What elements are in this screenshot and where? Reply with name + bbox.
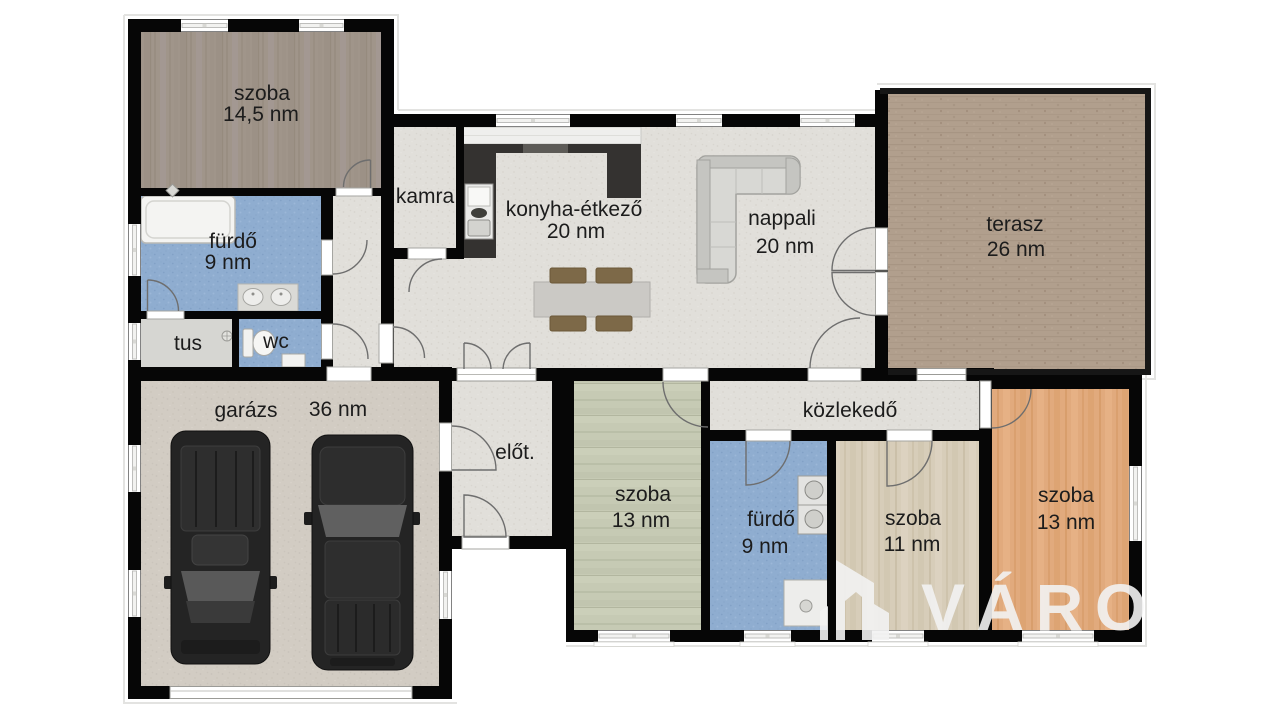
svg-text:14,5 nm: 14,5 nm — [223, 103, 299, 126]
svg-text:13 nm: 13 nm — [1037, 511, 1095, 534]
svg-text:szoba: szoba — [1038, 484, 1094, 507]
svg-text:VÁRO: VÁRO — [921, 570, 1158, 644]
svg-text:11 nm: 11 nm — [884, 533, 941, 556]
svg-text:nappali: nappali — [748, 207, 816, 230]
svg-text:26 nm: 26 nm — [987, 238, 1045, 261]
svg-text:kamra: kamra — [396, 185, 455, 208]
svg-text:terasz: terasz — [986, 213, 1043, 236]
svg-text:szoba: szoba — [615, 483, 671, 506]
svg-text:13 nm: 13 nm — [612, 509, 670, 532]
svg-text:közlekedő: közlekedő — [803, 399, 898, 422]
svg-text:fürdő: fürdő — [747, 508, 795, 531]
svg-text:36 nm: 36 nm — [309, 398, 367, 421]
svg-text:9 nm: 9 nm — [205, 251, 252, 274]
svg-text:20 nm: 20 nm — [547, 220, 605, 243]
svg-text:9 nm: 9 nm — [742, 535, 789, 558]
svg-text:wc: wc — [262, 330, 289, 353]
svg-text:tus: tus — [174, 332, 202, 355]
svg-text:konyha-étkező: konyha-étkező — [506, 198, 643, 221]
svg-text:20 nm: 20 nm — [756, 235, 814, 258]
svg-text:garázs: garázs — [214, 399, 277, 422]
svg-text:fürdő: fürdő — [209, 230, 257, 253]
svg-text:szoba: szoba — [234, 82, 290, 105]
svg-text:szoba: szoba — [885, 507, 941, 530]
svg-text:előt.: előt. — [495, 441, 535, 464]
